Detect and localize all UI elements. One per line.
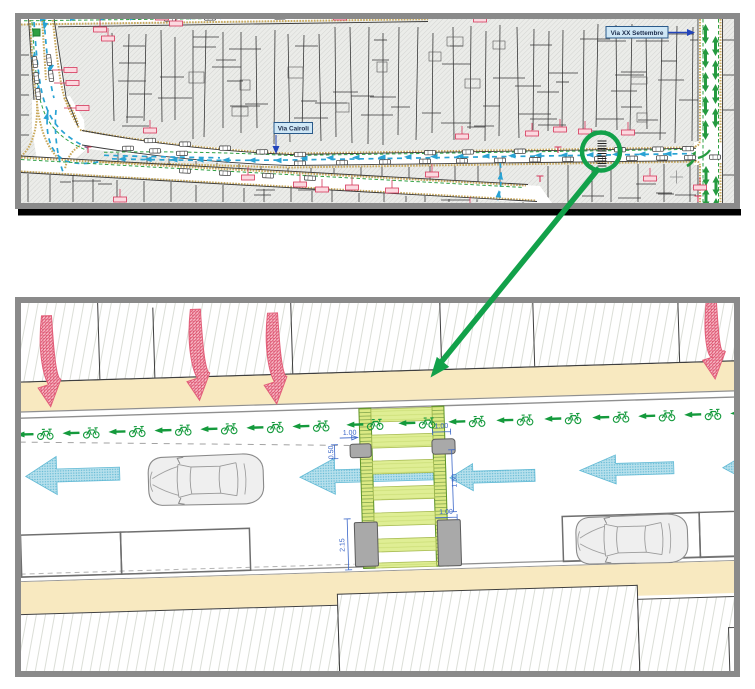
svg-text:1.50: 1.50 bbox=[451, 474, 458, 488]
svg-text:1.00: 1.00 bbox=[435, 423, 449, 430]
svg-text:0.50: 0.50 bbox=[328, 445, 335, 459]
svg-text:2.15: 2.15 bbox=[339, 538, 346, 552]
svg-text:1.00: 1.00 bbox=[343, 430, 357, 437]
svg-text:Via XX Settembre: Via XX Settembre bbox=[611, 30, 664, 37]
svg-text:1.00: 1.00 bbox=[439, 509, 453, 516]
svg-text:Via Cairoli: Via Cairoli bbox=[278, 126, 309, 133]
